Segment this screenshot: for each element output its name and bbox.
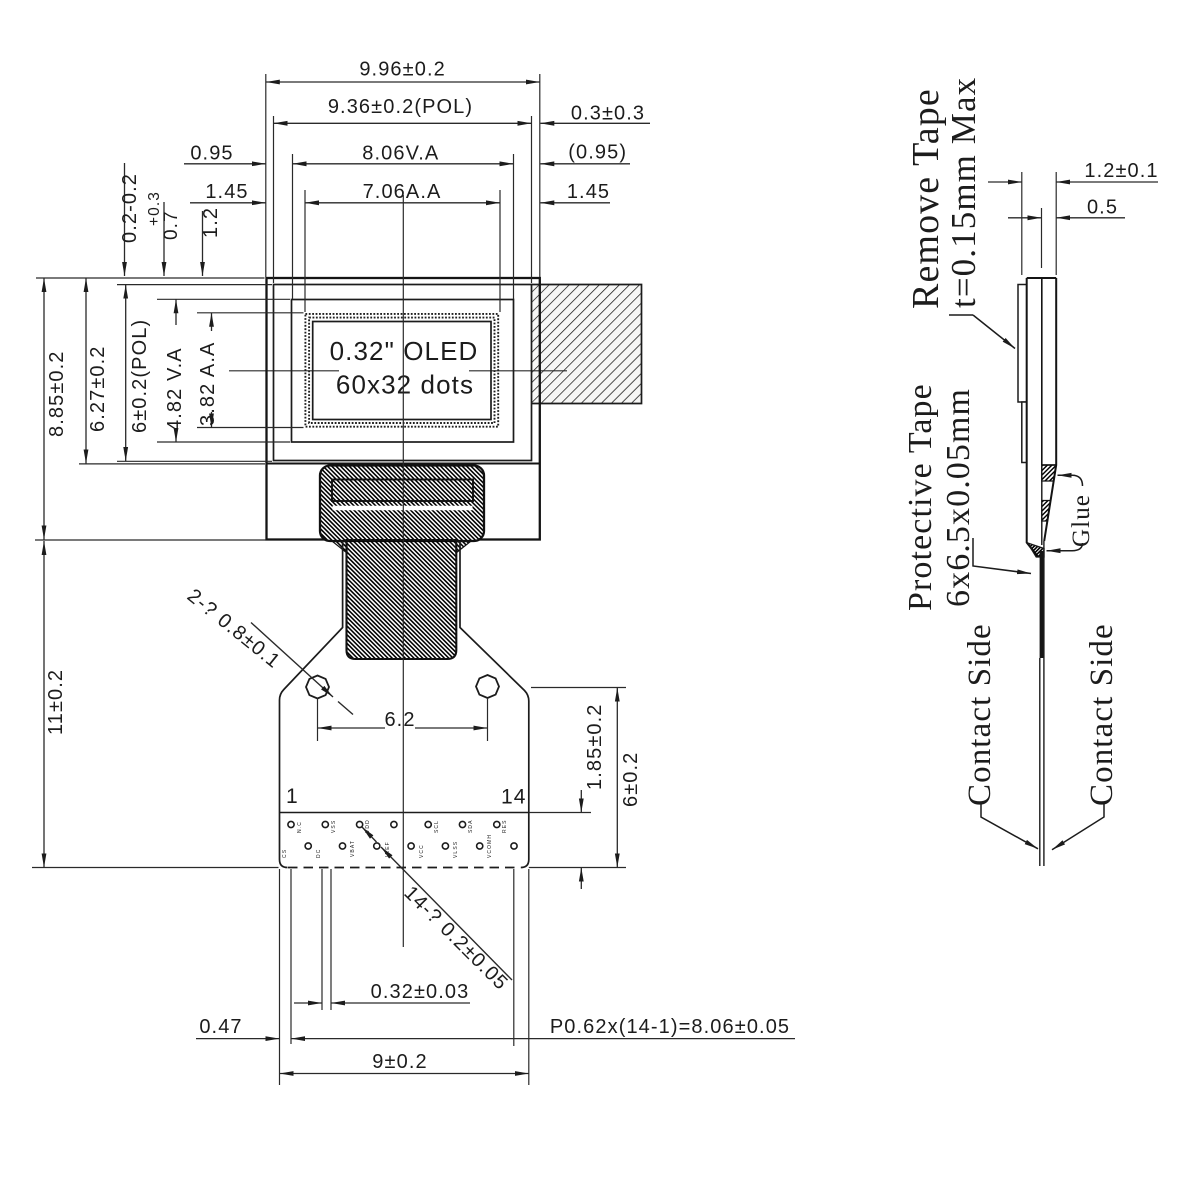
svg-text:Protective Tape: Protective Tape xyxy=(902,383,939,611)
svg-text:P0.62x(14-1)=8.06±0.05: P0.62x(14-1)=8.06±0.05 xyxy=(550,1016,790,1038)
svg-text:t=0.15mm Max: t=0.15mm Max xyxy=(944,77,983,308)
svg-text:9±0.2: 9±0.2 xyxy=(372,1051,427,1073)
svg-text:7.06A.A: 7.06A.A xyxy=(363,181,442,203)
svg-text:0.32" OLED: 0.32" OLED xyxy=(330,336,479,366)
svg-text:RES: RES xyxy=(502,819,508,833)
svg-text:11±0.2: 11±0.2 xyxy=(45,669,67,735)
svg-text:0.47: 0.47 xyxy=(199,1016,242,1038)
svg-text:VLSS: VLSS xyxy=(453,841,459,858)
svg-text:1: 1 xyxy=(286,785,299,808)
svg-text:1.45: 1.45 xyxy=(205,181,248,203)
svg-text:6.2: 6.2 xyxy=(384,709,415,731)
svg-text:VCOMH: VCOMH xyxy=(487,834,493,858)
svg-text:3.82 A.A: 3.82 A.A xyxy=(197,342,219,426)
svg-text:8.85±0.2: 8.85±0.2 xyxy=(46,350,68,437)
svg-text:Remove Tape: Remove Tape xyxy=(905,88,947,309)
svg-text:6x6.5x0.05mm: 6x6.5x0.05mm xyxy=(940,388,977,607)
svg-text:4.82 V.A: 4.82 V.A xyxy=(164,347,186,431)
svg-text:(0.95): (0.95) xyxy=(568,142,627,164)
svg-text:N.C: N.C xyxy=(297,821,303,833)
svg-text:VSS: VSS xyxy=(331,820,337,833)
svg-text:1.2±0.1: 1.2±0.1 xyxy=(1084,160,1158,182)
svg-text:VBAT: VBAT xyxy=(350,840,356,857)
svg-text:1.45: 1.45 xyxy=(567,181,610,203)
svg-text:0.32±0.03: 0.32±0.03 xyxy=(371,981,470,1003)
svg-text:1.85±0.2: 1.85±0.2 xyxy=(584,703,606,790)
svg-text:6.27±0.2: 6.27±0.2 xyxy=(87,345,109,432)
svg-text:1.2: 1.2 xyxy=(200,207,222,238)
svg-text:0.7: 0.7 xyxy=(161,210,182,240)
svg-text:CS: CS xyxy=(282,849,288,858)
svg-text:DC: DC xyxy=(316,849,322,858)
svg-text:6±0.2(POL): 6±0.2(POL) xyxy=(129,319,151,433)
svg-text:6±0.2: 6±0.2 xyxy=(620,752,642,807)
svg-text:60x32 dots: 60x32 dots xyxy=(336,370,474,400)
svg-text:9.96±0.2: 9.96±0.2 xyxy=(359,59,446,81)
svg-text:0.5: 0.5 xyxy=(1087,197,1118,219)
svg-text:0.95: 0.95 xyxy=(190,143,233,165)
svg-text:SDA: SDA xyxy=(468,819,474,833)
svg-text:8.06V.A: 8.06V.A xyxy=(362,143,439,165)
svg-text:14: 14 xyxy=(501,786,527,809)
svg-text:Contact Side: Contact Side xyxy=(1084,623,1120,806)
svg-text:0.2-0.2: 0.2-0.2 xyxy=(119,173,141,243)
svg-text:9.36±0.2(POL): 9.36±0.2(POL) xyxy=(328,96,473,118)
svg-text:Glue: Glue xyxy=(1068,494,1095,547)
svg-text:SCL: SCL xyxy=(434,820,440,833)
svg-text:Contact Side: Contact Side xyxy=(962,623,998,806)
svg-text:VCC: VCC xyxy=(419,844,425,858)
svg-text:0.3±0.3: 0.3±0.3 xyxy=(571,103,645,125)
